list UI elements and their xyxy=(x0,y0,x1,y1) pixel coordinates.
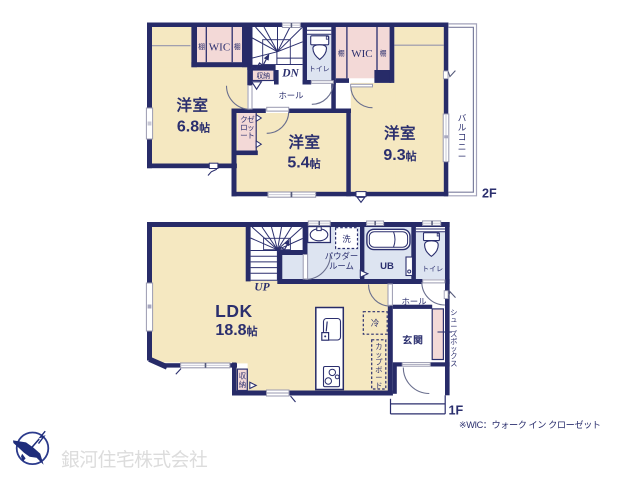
svg-text:ニ: ニ xyxy=(458,142,467,152)
svg-text:ト: ト xyxy=(247,131,255,140)
svg-text:DN: DN xyxy=(281,68,299,80)
svg-text:ルーム: ルーム xyxy=(329,261,354,271)
svg-text:UB: UB xyxy=(380,261,394,272)
svg-text:棚: 棚 xyxy=(198,42,205,51)
svg-text:ル: ル xyxy=(458,123,467,133)
svg-text:洋室: 洋室 xyxy=(384,124,416,143)
svg-text:棚: 棚 xyxy=(338,48,345,57)
svg-text:棚: 棚 xyxy=(380,48,387,57)
svg-text:WIC: WIC xyxy=(209,42,230,54)
svg-text:ス: ス xyxy=(450,359,457,368)
svg-text:洋室: 洋室 xyxy=(288,133,320,152)
svg-text:コ: コ xyxy=(458,132,467,142)
svg-text:バ: バ xyxy=(458,113,467,123)
svg-text:収納: 収納 xyxy=(256,71,270,80)
svg-text:UP: UP xyxy=(254,282,270,294)
svg-text:パウダー: パウダー xyxy=(325,251,359,261)
svg-text:玄関: 玄関 xyxy=(402,333,424,346)
svg-text:棚: 棚 xyxy=(234,42,241,51)
svg-text:納: 納 xyxy=(239,380,246,389)
svg-text:1F: 1F xyxy=(449,404,464,418)
svg-text:ホール: ホール xyxy=(401,296,426,306)
svg-text:トイレ: トイレ xyxy=(309,66,330,73)
svg-text:ホール: ホール xyxy=(278,91,303,101)
svg-text:LDK: LDK xyxy=(215,301,252,321)
svg-text:※WIC：ウォーク イン クローゼット: ※WIC：ウォーク イン クローゼット xyxy=(459,419,601,430)
svg-text:ー: ー xyxy=(458,151,467,161)
svg-text:トイレ: トイレ xyxy=(422,266,443,273)
svg-text:2F: 2F xyxy=(482,186,497,200)
svg-text:冷: 冷 xyxy=(371,318,379,328)
svg-text:洋室: 洋室 xyxy=(176,96,208,115)
svg-text:ド: ド xyxy=(375,381,382,390)
svg-text:銀河住宅株式会社: 銀河住宅株式会社 xyxy=(61,449,208,470)
svg-text:WIC: WIC xyxy=(351,48,372,60)
svg-text:洗: 洗 xyxy=(342,234,351,244)
